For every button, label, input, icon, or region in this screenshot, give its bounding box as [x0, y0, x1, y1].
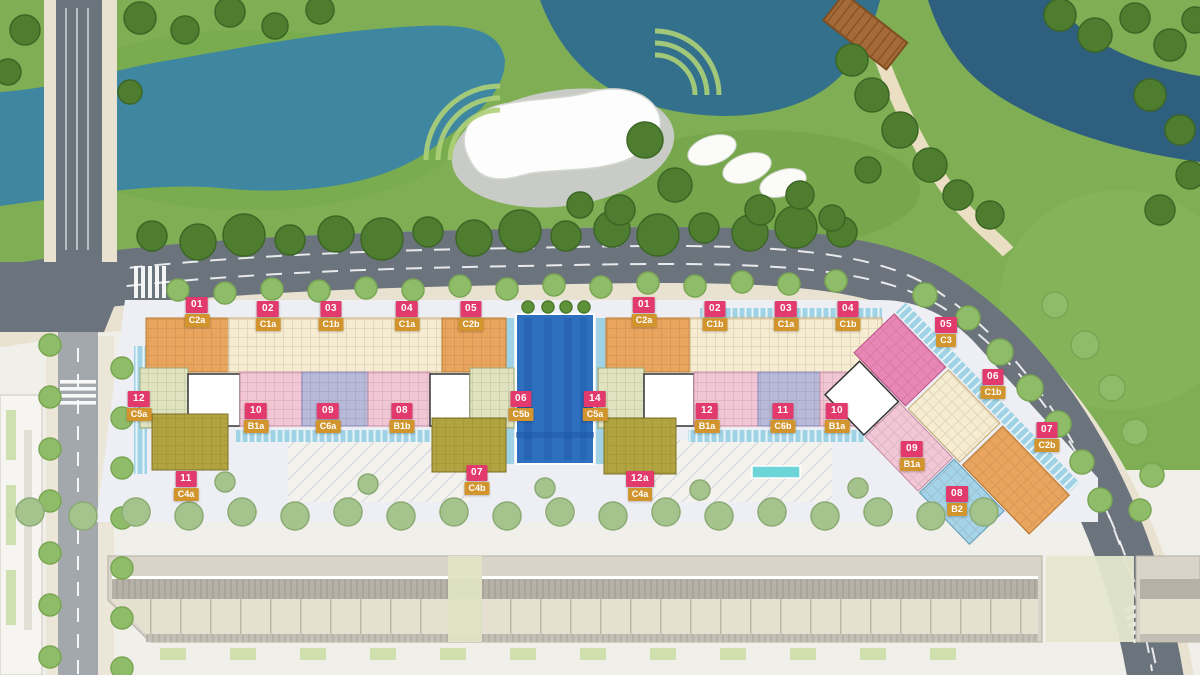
- unit-number: 08: [946, 486, 968, 502]
- unit-code: B2: [947, 503, 967, 516]
- unit-badge[interactable]: 09B1a: [900, 441, 925, 471]
- unit-code: C6b: [770, 420, 795, 433]
- unit-number: 04: [396, 301, 418, 317]
- unit-badge-layer: 01C2a02C1a03C1b04C1a05C2b01C2a02C1b03C1a…: [0, 0, 1200, 675]
- unit-number: 02: [704, 301, 726, 317]
- unit-number: 01: [633, 297, 655, 313]
- unit-code: C2b: [1034, 439, 1059, 452]
- unit-code: C2b: [458, 318, 483, 331]
- unit-code: C1a: [256, 318, 281, 331]
- unit-number: 06: [982, 369, 1004, 385]
- unit-badge[interactable]: 02C1a: [256, 301, 281, 331]
- unit-number: 11: [175, 471, 196, 487]
- unit-number: 08: [391, 403, 413, 419]
- unit-code: C6a: [316, 420, 341, 433]
- unit-number: 05: [460, 301, 482, 317]
- unit-code: C1b: [835, 318, 860, 331]
- unit-number: 06: [510, 391, 532, 407]
- unit-number: 07: [1036, 422, 1058, 438]
- siteplan-canvas: 01C2a02C1a03C1b04C1a05C2b01C2a02C1b03C1a…: [0, 0, 1200, 675]
- unit-badge[interactable]: 04C1a: [395, 301, 420, 331]
- unit-code: C4a: [628, 488, 653, 501]
- unit-code: B1a: [244, 420, 269, 433]
- unit-badge[interactable]: 10B1a: [825, 403, 850, 433]
- unit-number: 12: [128, 391, 150, 407]
- unit-badge[interactable]: 03C1b: [318, 301, 343, 331]
- unit-code: B1a: [900, 458, 925, 471]
- unit-badge[interactable]: 10B1a: [244, 403, 269, 433]
- unit-badge[interactable]: 08B1b: [389, 403, 414, 433]
- unit-badge[interactable]: 09C6a: [316, 403, 341, 433]
- unit-badge[interactable]: 08B2: [946, 486, 968, 516]
- unit-badge[interactable]: 03C1a: [774, 301, 799, 331]
- unit-number: 10: [245, 403, 267, 419]
- unit-code: C1b: [980, 386, 1005, 399]
- unit-code: C1a: [395, 318, 420, 331]
- unit-number: 09: [317, 403, 339, 419]
- unit-number: 11: [772, 403, 793, 419]
- unit-code: C2a: [185, 314, 210, 327]
- unit-badge[interactable]: 06C1b: [980, 369, 1005, 399]
- unit-number: 14: [584, 391, 606, 407]
- unit-code: C3: [936, 334, 956, 347]
- unit-code: C4b: [464, 482, 489, 495]
- unit-badge[interactable]: 05C2b: [458, 301, 483, 331]
- unit-number: 01: [186, 297, 208, 313]
- unit-number: 02: [257, 301, 279, 317]
- unit-badge[interactable]: 07C2b: [1034, 422, 1059, 452]
- unit-number: 03: [775, 301, 797, 317]
- unit-code: C4a: [174, 488, 199, 501]
- unit-badge[interactable]: 12C5a: [127, 391, 152, 421]
- unit-code: B1b: [389, 420, 414, 433]
- unit-badge[interactable]: 01C2a: [632, 297, 657, 327]
- unit-code: C1a: [774, 318, 799, 331]
- unit-badge[interactable]: 14C5a: [583, 391, 608, 421]
- unit-badge[interactable]: 07C4b: [464, 465, 489, 495]
- unit-number: 12: [696, 403, 718, 419]
- unit-number: 05: [935, 317, 957, 333]
- unit-code: C1b: [702, 318, 727, 331]
- unit-number: 09: [901, 441, 923, 457]
- unit-badge[interactable]: 12B1a: [695, 403, 720, 433]
- unit-number: 03: [320, 301, 342, 317]
- unit-badge[interactable]: 11C4a: [174, 471, 199, 501]
- unit-number: 07: [466, 465, 488, 481]
- unit-code: B1a: [825, 420, 850, 433]
- unit-code: B1a: [695, 420, 720, 433]
- unit-number: 12a: [626, 471, 654, 487]
- unit-number: 04: [837, 301, 859, 317]
- unit-badge[interactable]: 01C2a: [185, 297, 210, 327]
- unit-code: C5b: [508, 408, 533, 421]
- unit-badge[interactable]: 04C1b: [835, 301, 860, 331]
- unit-badge[interactable]: 06C5b: [508, 391, 533, 421]
- unit-number: 10: [826, 403, 848, 419]
- unit-code: C5a: [127, 408, 152, 421]
- unit-badge[interactable]: 05C3: [935, 317, 957, 347]
- unit-badge[interactable]: 02C1b: [702, 301, 727, 331]
- unit-badge[interactable]: 11C6b: [770, 403, 795, 433]
- unit-badge[interactable]: 12aC4a: [626, 471, 654, 501]
- unit-code: C1b: [318, 318, 343, 331]
- unit-code: C5a: [583, 408, 608, 421]
- unit-code: C2a: [632, 314, 657, 327]
